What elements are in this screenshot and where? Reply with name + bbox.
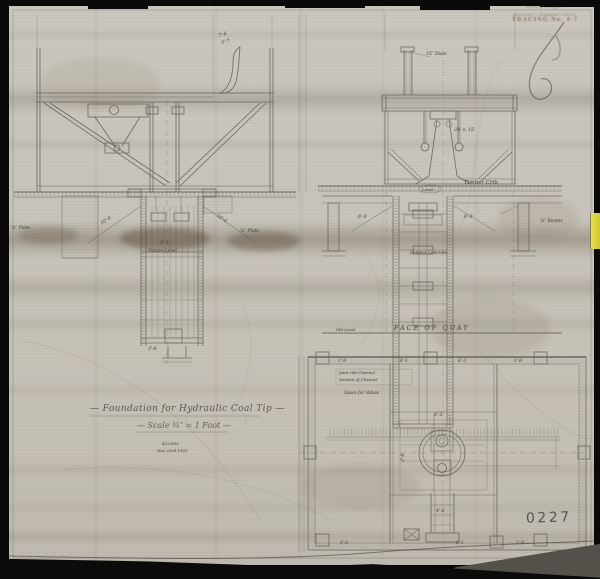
label-plan-left-dim: 3'-6	[401, 454, 406, 462]
photo-edge-top-bump	[540, 0, 600, 7]
label-shaft-dim: 8'-6	[160, 241, 168, 246]
photo-edge-top-bump	[88, 0, 148, 9]
label-ref-number: 4223/93	[162, 441, 179, 446]
sticky-tab	[590, 213, 600, 249]
label-left-foundation-dim-left: 10'-6	[100, 216, 112, 226]
label-plate-left: ⅝″ Plate	[11, 226, 30, 231]
label-timber-crib: Timber Crib	[464, 180, 498, 186]
photo-edge-right	[594, 0, 600, 579]
photo-edge-top-bump	[285, 0, 365, 8]
label-plan-center-dim: 5'-2	[434, 413, 442, 418]
label-old-level: Old Level	[336, 327, 355, 332]
label-plan-bottom-dim-3: 1'-0	[516, 540, 524, 545]
photo-edge-left	[0, 0, 9, 579]
label-beams-right: ⅝″ Beams	[540, 219, 563, 224]
annotation-layer: 7'-6 5'-7 15″ Diam 24 × 15 Timber Crib L…	[0, 0, 600, 579]
label-plan-top-dim-1: 1'-9	[338, 358, 346, 363]
label-shaft-foot-dim: 3'-6	[148, 347, 156, 352]
label-section-dim-left: 6'-0	[358, 215, 366, 220]
label-concrete: Cement Concrete	[410, 250, 447, 255]
label-post-diameter: 15″ Diam	[426, 52, 447, 57]
label-horn-dim-lower: 5'-7	[221, 39, 230, 46]
label-plan-note-2: Section of Channel	[339, 377, 377, 382]
label-plan-top-dim-4: 1'-9	[514, 358, 522, 363]
label-datum-level: Datum Level	[148, 249, 177, 254]
label-beam-size: 24 × 15	[454, 127, 474, 133]
sheet-title: — Foundation for Hydraulic Coal Tip —	[90, 404, 285, 414]
photo-of-drawing: { "sheet": { "title": "— Foundation for …	[0, 0, 600, 579]
sheet-scale-note: — Scale ¾″ = 1 Foot —	[137, 421, 231, 430]
label-face-of-quay: FACE OF QUAY	[394, 324, 470, 332]
label-level: Level	[422, 187, 433, 192]
label-section-dim-right: 6'-0	[464, 215, 472, 220]
label-plan-top-dim-3: 6'-3	[458, 358, 466, 363]
label-horn-dim-upper: 7'-6	[218, 32, 227, 39]
label-date-note: Nov 23rd 1931	[157, 448, 187, 453]
label-plan-bottom-dim-2: 6'-1	[456, 540, 464, 545]
stamp-line-3: TRACING No. 4-7	[494, 17, 596, 25]
label-plan-note-3: Space for Valves	[344, 390, 379, 395]
photo-edge-top-bump	[420, 0, 490, 10]
office-stamp: Dock Dept. Received — Engineer's Office …	[494, 4, 596, 24]
drawing-number: 0227	[526, 509, 572, 527]
label-left-foundation-dim-right: 10'-6	[215, 214, 227, 224]
label-plan-top-dim-2: 6'-1	[400, 358, 408, 363]
label-plate-right: ⅝″ Plate	[240, 229, 259, 234]
label-plan-note-1: Joint Old Channel	[339, 370, 375, 375]
label-plan-bottom-dim-1: 1'-0	[340, 540, 348, 545]
label-plan-stem-dim: 4'-6	[436, 509, 444, 514]
